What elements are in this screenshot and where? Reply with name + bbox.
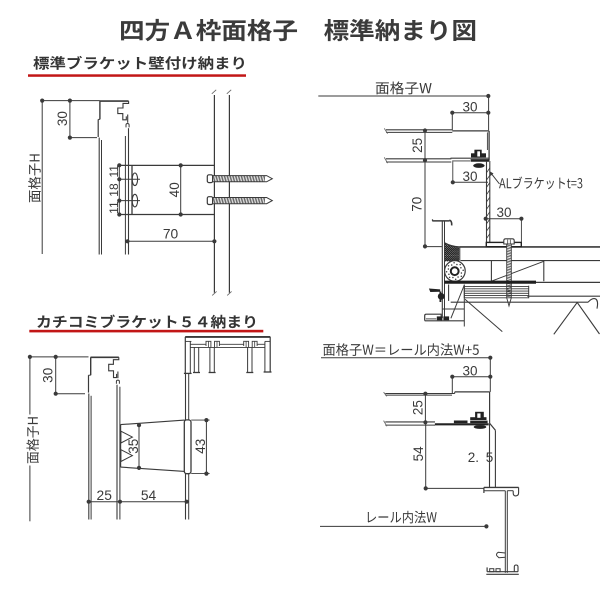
svg-text:70: 70 (409, 197, 424, 212)
svg-text:70: 70 (163, 226, 179, 241)
svg-text:54: 54 (411, 446, 426, 462)
svg-text:30: 30 (462, 169, 477, 184)
svg-text:11: 11 (107, 165, 121, 178)
svg-text:25: 25 (411, 400, 426, 415)
svg-text:25: 25 (410, 138, 425, 153)
svg-text:30: 30 (40, 368, 55, 383)
svg-text:11: 11 (107, 201, 121, 214)
svg-text:35: 35 (126, 439, 141, 454)
svg-text:25: 25 (97, 488, 113, 503)
svg-text:30: 30 (462, 363, 477, 378)
svg-text:30: 30 (462, 99, 477, 114)
svg-text:40: 40 (167, 182, 182, 197)
svg-text:30: 30 (55, 111, 70, 126)
svg-text:30: 30 (496, 205, 511, 220)
svg-text:43: 43 (193, 439, 208, 454)
svg-text:2.: 2. (468, 450, 479, 465)
svg-text:18: 18 (107, 183, 121, 197)
svg-text:54: 54 (141, 488, 157, 503)
